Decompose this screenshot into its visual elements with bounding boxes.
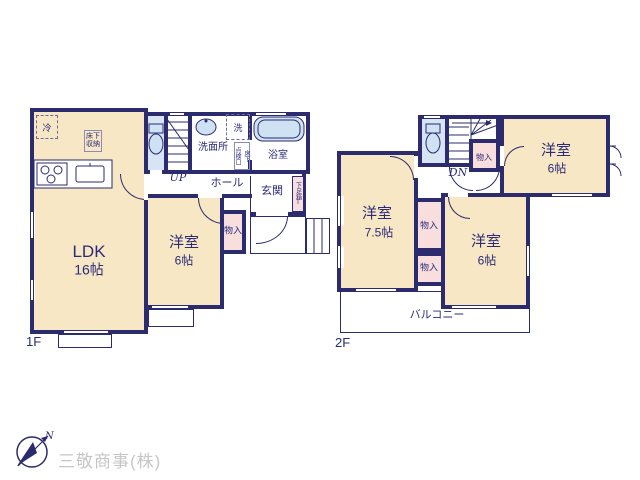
inspection-label-right: 床下: [242, 150, 251, 162]
underfloor-inspection: 点検口 床下: [234, 142, 250, 170]
terrace-bedroom: [148, 309, 194, 327]
bedroom-a-label: 洋室: [541, 143, 571, 159]
hall-label: ホール: [211, 178, 244, 190]
terrace-ldk: [58, 334, 112, 348]
underfloor-storage-label: 床下収納: [86, 133, 100, 150]
bedroom-1f-label: 洋室: [169, 235, 199, 251]
closet-2f-stairs-label: 物入: [476, 154, 492, 162]
shoe-cabinet-label: 下足箱: [294, 182, 303, 200]
closet-2f-upper-label: 物入: [420, 221, 438, 230]
bedroom-a-size: 6帖: [548, 163, 567, 176]
ldk-label: LDK: [72, 243, 105, 261]
shoe-cabinet: 下足箱 T: [292, 176, 304, 212]
washroom-label: 洗面所: [198, 143, 228, 154]
porch-steps: [306, 218, 330, 254]
fridge-space: 冷: [36, 115, 58, 139]
laundry-label: 洗: [233, 121, 242, 134]
laundry-space: 洗: [226, 114, 250, 140]
balcony-label: バルコニー: [410, 310, 465, 322]
stairs-dn-label: DN: [449, 167, 467, 179]
bathroom-label: 浴室: [268, 151, 288, 162]
north-label: N: [44, 431, 55, 442]
bedroom-b-size: 7.5帖: [365, 227, 394, 240]
compass-icon: N: [17, 431, 55, 467]
shoe-cabinet-t: T: [296, 200, 300, 206]
bedroom-c-size: 6帖: [478, 255, 497, 268]
wall-segment: [224, 194, 252, 198]
bedroom-c-label: 洋室: [471, 234, 501, 250]
ldk-size: 16帖: [74, 263, 104, 278]
underfloor-storage: 床下収納: [84, 130, 102, 152]
company-name: 三敬商事(株): [58, 447, 161, 472]
floor-label-2f: 2F: [335, 336, 350, 350]
bedroom-b-label: 洋室: [362, 206, 392, 222]
fridge-label: 冷: [42, 121, 51, 134]
bedroom-1f-size: 6帖: [175, 255, 194, 268]
closet-2f-lower-label: 物入: [420, 263, 438, 272]
stairs-up-label: UP: [170, 172, 187, 184]
closet-1f-label: 物入: [224, 226, 242, 235]
inspection-label-left: 点検口: [233, 147, 242, 165]
floor-label-1f: 1F: [26, 335, 41, 349]
entrance-step-line: [250, 176, 251, 212]
entrance-label: 玄関: [261, 186, 283, 198]
floorplan-canvas: 下足箱 T 冷 洗 床下収納 点検口 床下 LDK 16帖 洋室 6帖 ホール …: [0, 0, 640, 480]
door-arc-stairs-2f-right: [476, 167, 500, 191]
room-bathroom: [248, 112, 310, 174]
